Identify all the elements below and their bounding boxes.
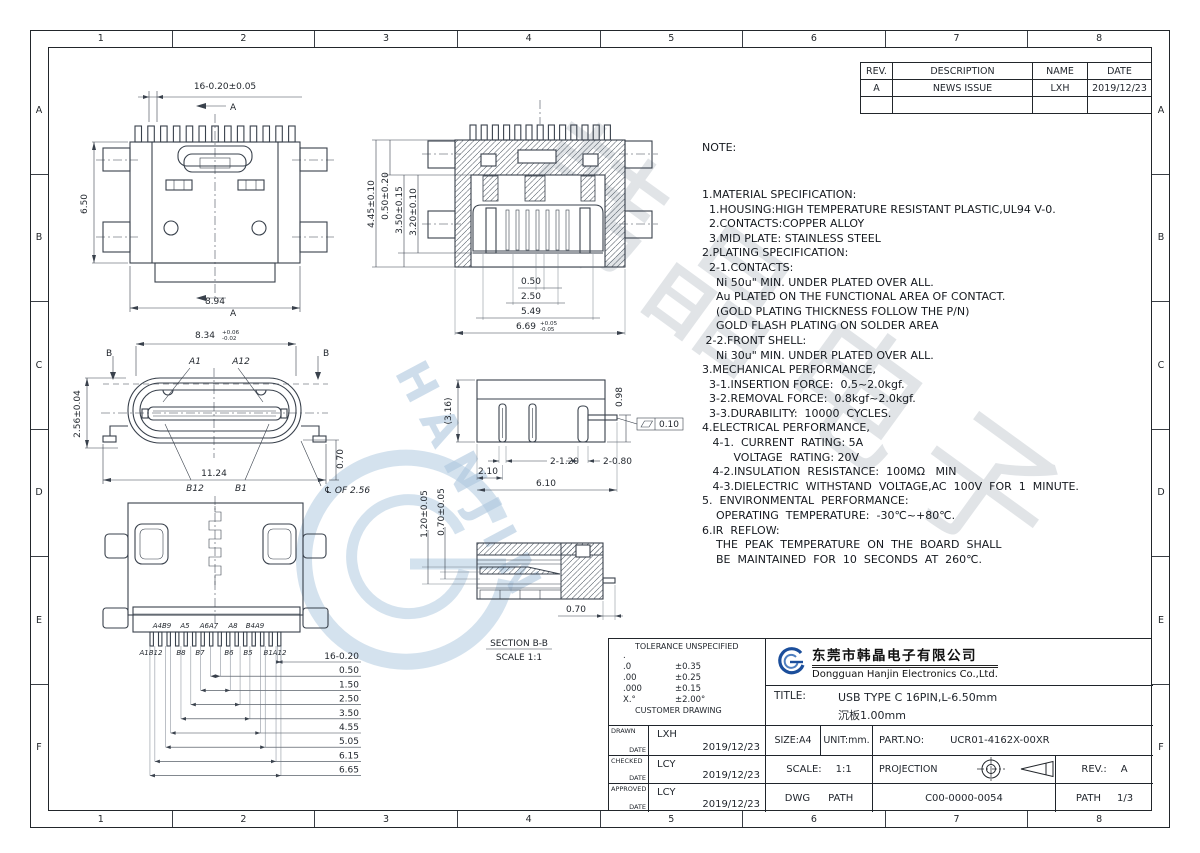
svg-text:6.10: 6.10 (536, 479, 556, 489)
checked-row: CHECKED DATE LCY 2019/12/23 (609, 755, 766, 784)
svg-text:5.49: 5.49 (521, 307, 541, 317)
rev-header: DESCRIPTION (893, 63, 1033, 80)
svg-text:8.34: 8.34 (195, 331, 215, 341)
top-view-drawing: 16-0.20±0.05 A A 6.50 (78, 76, 368, 326)
svg-text:0.70: 0.70 (566, 605, 586, 615)
front-section-drawing: 4.45±0.10 0.50±0.20 3.50±0.15 3.20±0.10 … (368, 98, 673, 338)
sheet-cell: PATH 1/3 (1056, 783, 1153, 812)
svg-text:-0.05: -0.05 (540, 327, 555, 333)
svg-text:A12: A12 (231, 357, 250, 367)
svg-text:6.15: 6.15 (339, 751, 359, 761)
svg-text:A6A7: A6A7 (199, 622, 219, 630)
svg-text:B6: B6 (224, 649, 234, 657)
pin-pitch-ladder: 16-0.200.501.502.503.504.555.056.156.65 (150, 646, 361, 777)
svg-text:11.24: 11.24 (201, 469, 227, 479)
part-no-label: PART.NO: (879, 735, 924, 746)
svg-text:0.50: 0.50 (521, 277, 541, 287)
scale-cell: SCALE: 1:1 (766, 755, 873, 784)
bottom-view-drawing: A4B9 A5 A6A7 A8 B4A9 A1B12 B8 B7 B6 B5 B… (93, 496, 393, 808)
size-cell: SIZE:A4 (766, 726, 821, 755)
svg-text:5.05: 5.05 (339, 737, 359, 747)
svg-text:B12: B12 (186, 484, 204, 494)
svg-text:0.70: 0.70 (336, 449, 346, 469)
checked-name: LCY (657, 759, 676, 770)
notes-body: 1.MATERIAL SPECIFICATION: 1.HOUSING:HIGH… (702, 188, 1157, 567)
rev-cell: 2019/12/23 (1088, 80, 1151, 97)
company-name-cn: 东莞市韩晶电子有限公司 (812, 644, 998, 664)
svg-text:B8: B8 (176, 649, 186, 657)
svg-text:-0.02: -0.02 (222, 336, 236, 342)
svg-text:1.50: 1.50 (339, 680, 359, 690)
svg-text:B5: B5 (243, 649, 253, 657)
svg-text:2-0.80: 2-0.80 (603, 457, 632, 467)
company-box: 东莞市韩晶电子有限公司 Dongguan Hanjin Electronics … (766, 639, 1153, 686)
title-box: TITLE: USB TYPE C 16PIN,L-6.50mm 沉板1.00m… (766, 686, 1153, 726)
rev-value: A (1121, 764, 1128, 775)
svg-text:SECTION B-B: SECTION B-B (490, 639, 548, 649)
svg-text:A1: A1 (188, 357, 201, 367)
scale-value: 1:1 (836, 764, 852, 775)
svg-text:A1B12: A1B12 (139, 649, 163, 657)
tolerance-box: TOLERANCE UNSPECIFIED . .0±0.35 .00±0.25… (609, 639, 766, 726)
approved-date: 2019/12/23 (702, 799, 760, 810)
svg-text:0.50±0.20: 0.50±0.20 (381, 172, 391, 220)
pin-labels-bottom: A1B12 B8 B7 B6 B5 B1A12 (139, 649, 287, 657)
svg-text:6.50: 6.50 (80, 194, 90, 214)
svg-text:3.20±0.10: 3.20±0.10 (409, 188, 419, 236)
svg-text:℄ OF 2.56: ℄ OF 2.56 (324, 486, 370, 496)
dwg-path-cell: DWG PATH (766, 783, 873, 812)
unit-cell: UNIT:mm. (821, 726, 873, 755)
svg-text:6.69: 6.69 (516, 322, 536, 332)
rev-cell: NEWS ISSUE (893, 80, 1033, 97)
drawing-sheet: 韩晶电子 HANJIN 12345678 12345678 ABCDEF ABC… (0, 0, 1200, 853)
notes-block: NOTE: 1.MATERIAL SPECIFICATION: 1.HOUSIN… (702, 112, 1157, 597)
projection-cell: PROJECTION (873, 755, 1056, 784)
svg-text:B: B (106, 349, 112, 359)
svg-text:A4B9: A4B9 (152, 622, 172, 630)
svg-text:8.94: 8.94 (205, 297, 225, 307)
svg-text:2.50: 2.50 (521, 292, 541, 302)
svg-text:0.70±0.05: 0.70±0.05 (437, 488, 447, 536)
projection-label: PROJECTION (879, 764, 937, 775)
svg-text:16-0.20: 16-0.20 (324, 652, 359, 662)
svg-text:0.98: 0.98 (615, 387, 625, 407)
svg-text:2-1.20: 2-1.20 (550, 457, 579, 467)
svg-text:A5: A5 (179, 622, 190, 630)
svg-text:B: B (323, 349, 329, 359)
notes-title: NOTE: (702, 141, 1157, 156)
rev-cell: A (861, 80, 893, 97)
dwg-no-cell: C00-0000-0054 (873, 783, 1056, 812)
customer-drawing-label: CUSTOMER DRAWING (609, 706, 765, 715)
svg-text:4.45±0.10: 4.45±0.10 (367, 180, 377, 228)
part-no-cell: PART.NO: UCR01-4162X-00XR (873, 726, 1153, 755)
svg-text:B4A9: B4A9 (246, 622, 265, 630)
svg-text:A: A (230, 309, 237, 319)
svg-text:2.50: 2.50 (339, 695, 359, 705)
rev-header: REV. (861, 63, 893, 80)
svg-text:3.50: 3.50 (339, 709, 359, 719)
rev-header: DATE (1088, 63, 1151, 80)
drawing-title-line2: 沉板1.00mm (838, 707, 906, 723)
svg-text:2.56±0.04: 2.56±0.04 (73, 390, 83, 438)
company-name-en: Dongguan Hanjin Electronics Co.,Ltd. (812, 665, 998, 680)
svg-text:6.65: 6.65 (339, 766, 359, 776)
svg-text:B1A12: B1A12 (264, 649, 287, 657)
title-label: TITLE: (774, 690, 806, 702)
revision-table: REV. DESCRIPTION NAME DATE A NEWS ISSUE … (860, 62, 1152, 114)
svg-text:4.55: 4.55 (339, 723, 359, 733)
flatness-callout: 0.10 (617, 418, 683, 430)
rev-cell: LXH (1033, 80, 1088, 97)
svg-text:2.10: 2.10 (478, 467, 498, 477)
rev-header: NAME (1033, 63, 1088, 80)
svg-text:B1: B1 (235, 484, 247, 494)
pin-labels-top: A4B9 A5 A6A7 A8 B4A9 (152, 622, 265, 630)
title-block: TOLERANCE UNSPECIFIED . .0±0.35 .00±0.25… (608, 638, 1152, 811)
svg-text:A8: A8 (227, 622, 238, 630)
approved-row: APPROVED DATE LCY 2019/12/23 (609, 783, 766, 812)
drawn-name: LXH (657, 729, 677, 740)
svg-text:0.50: 0.50 (339, 666, 359, 676)
svg-text:0.10: 0.10 (659, 420, 679, 430)
drawn-row: DRAWN DATE LXH 2019/12/23 (609, 726, 766, 755)
svg-text:B7: B7 (195, 649, 205, 657)
side-view-drawing: (3.16) 0.98 0.10 2-1.20 2-0.80 2.10 6.10 (438, 366, 708, 506)
svg-text:SCALE 1:1: SCALE 1:1 (496, 653, 542, 663)
rev-cell: REV.: A (1056, 755, 1153, 784)
svg-text:1.20±0.05: 1.20±0.05 (420, 490, 430, 538)
checked-date: 2019/12/23 (702, 770, 760, 781)
svg-text:16-0.20±0.05: 16-0.20±0.05 (194, 82, 256, 92)
third-angle-projection-icon (955, 757, 1067, 781)
sheet-value: 1/3 (1117, 793, 1133, 804)
svg-text:3.50±0.15: 3.50±0.15 (395, 186, 405, 234)
part-no-value: UCR01-4162X-00XR (950, 735, 1050, 746)
face-view-drawing: 8.34 +0.06 -0.02 B B A1 A12 B12 B1 (73, 328, 403, 513)
drawn-date: 2019/12/23 (702, 742, 760, 753)
svg-text:(3.16): (3.16) (444, 397, 454, 424)
approved-name: LCY (657, 787, 676, 798)
drawing-title-line1: USB TYPE C 16PIN,L-6.50mm (838, 691, 997, 704)
company-logo-swirl (772, 645, 808, 679)
svg-text:A: A (230, 103, 237, 113)
tolerance-title: TOLERANCE UNSPECIFIED (609, 642, 765, 651)
